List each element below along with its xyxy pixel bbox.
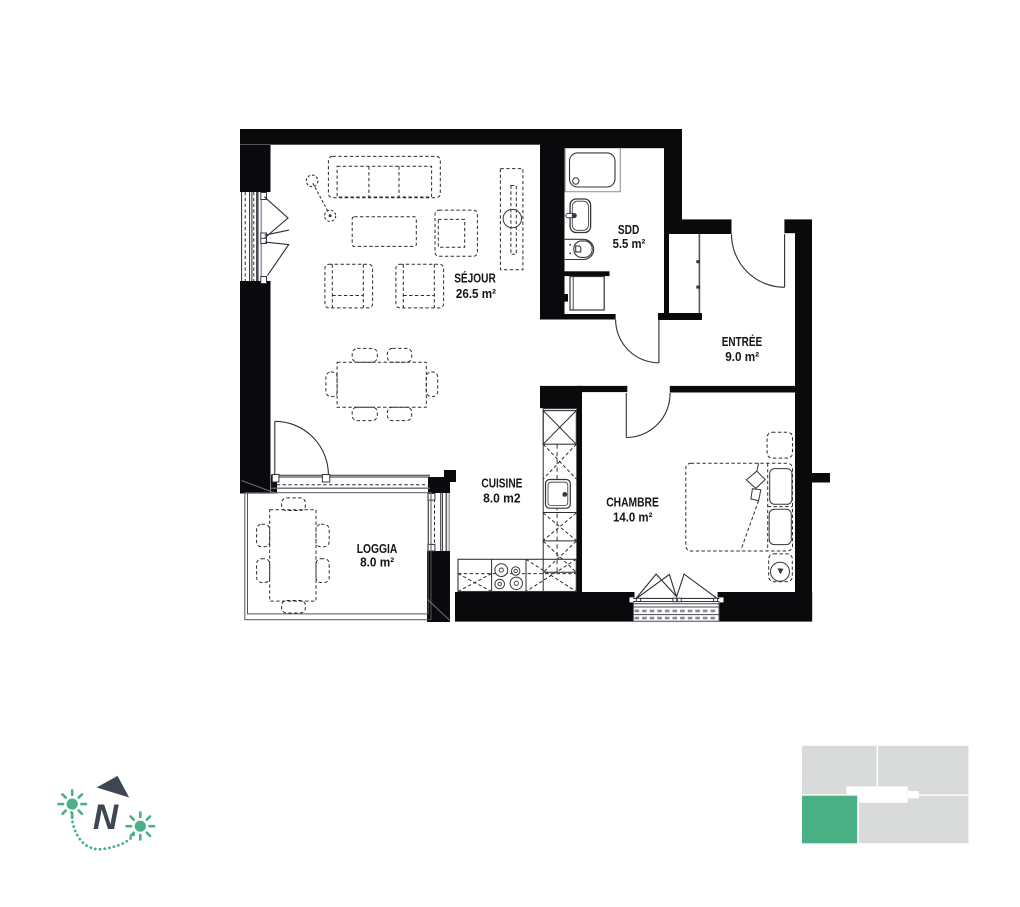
- svg-text:SDD: SDD: [618, 223, 640, 237]
- svg-text:SÉJOUR: SÉJOUR: [454, 271, 496, 286]
- svg-text:8.0 m2: 8.0 m2: [483, 492, 521, 506]
- svg-text:8.0 m²: 8.0 m²: [360, 556, 394, 570]
- svg-text:CHAMBRE: CHAMBRE: [606, 496, 659, 510]
- svg-text:CUISINE: CUISINE: [481, 477, 522, 491]
- svg-text:ENTRÉE: ENTRÉE: [722, 334, 763, 349]
- svg-text:9.0 m²: 9.0 m²: [725, 350, 759, 364]
- svg-text:N: N: [93, 798, 119, 837]
- svg-text:LOGGIA: LOGGIA: [357, 542, 398, 556]
- svg-text:14.0 m²: 14.0 m²: [613, 510, 652, 524]
- svg-text:5.5 m²: 5.5 m²: [613, 237, 646, 251]
- svg-text:26.5 m²: 26.5 m²: [456, 287, 496, 301]
